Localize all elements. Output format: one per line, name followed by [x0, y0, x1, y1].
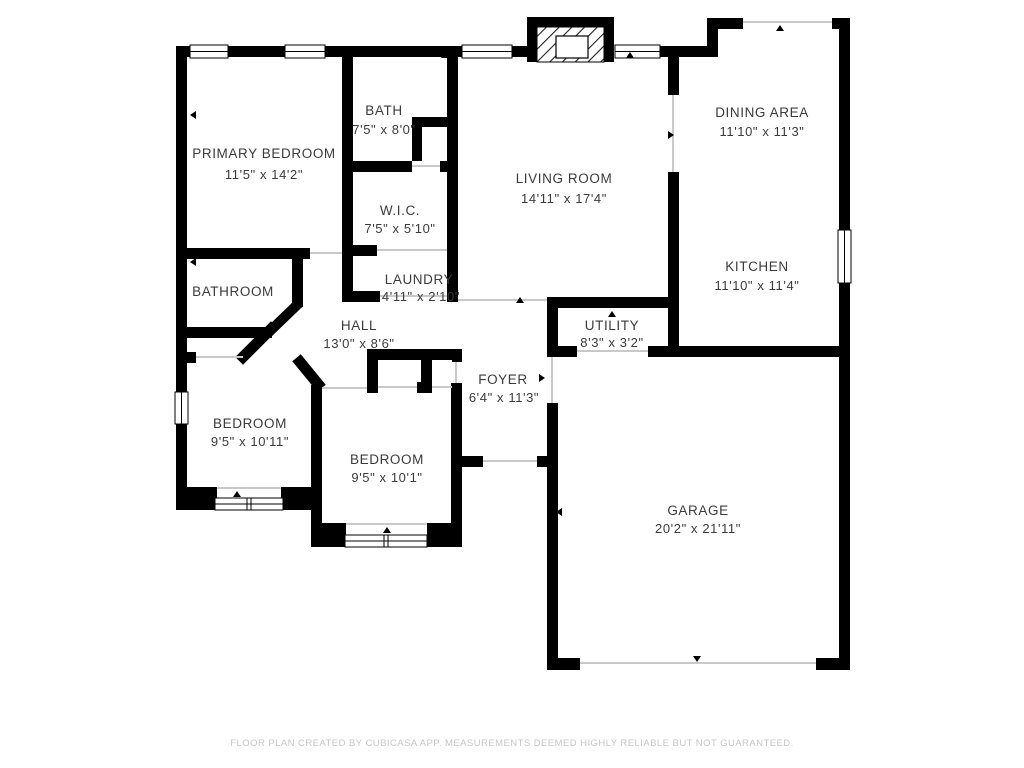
room-dims-bedroom-center: 9'5" x 10'1": [351, 470, 422, 485]
room-dims-primary-bedroom: 11'5" x 14'2": [225, 167, 303, 182]
room-label-kitchen: KITCHEN: [725, 259, 788, 274]
bay-window-icon: [215, 498, 283, 510]
window-icon: [838, 230, 851, 283]
room-label-bathroom: BATHROOM: [192, 284, 274, 299]
fireplace-icon: [527, 17, 614, 62]
room-label-utility: UTILITY: [585, 318, 639, 333]
window-icon: [190, 45, 228, 58]
room-dims-bedroom-left: 9'5" x 10'11": [211, 434, 289, 449]
window-icon: [175, 392, 188, 424]
room-label-wic: W.I.C.: [380, 203, 420, 218]
room-label-dining-area: DINING AREA: [715, 105, 809, 120]
room-label-primary-bedroom: PRIMARY BEDROOM: [192, 146, 336, 161]
room-label-bath: BATH: [365, 103, 402, 118]
floor-plan-svg: PRIMARY BEDROOM 11'5" x 14'2" BATH 7'5" …: [0, 0, 1024, 768]
room-dims-hall: 13'0" x 8'6": [323, 336, 394, 351]
room-dims-utility: 8'3" x 3'2": [580, 335, 643, 350]
room-label-living-room: LIVING ROOM: [516, 171, 613, 186]
room-dims-laundry: 4'11" x 2'10": [382, 289, 460, 304]
room-label-laundry: LAUNDRY: [385, 272, 453, 287]
room-label-foyer: FOYER: [478, 372, 528, 387]
angled-walls: [243, 306, 318, 384]
footer-disclaimer: FLOOR PLAN CREATED BY CUBICASA APP. MEAS…: [0, 738, 1024, 749]
window-icon: [462, 45, 512, 58]
room-dims-bath: 7'5" x 8'0": [352, 122, 415, 137]
room-dims-kitchen: 11'10" x 11'4": [715, 278, 800, 293]
room-dims-wic: 7'5" x 5'10": [364, 221, 435, 236]
bay-window-icon: [345, 535, 427, 547]
window-icon: [285, 45, 325, 58]
window-icon: [615, 45, 660, 58]
floor-plan-page: PRIMARY BEDROOM 11'5" x 14'2" BATH 7'5" …: [0, 0, 1024, 768]
room-label-hall: HALL: [341, 318, 377, 333]
room-label-bedroom-center: BEDROOM: [350, 452, 424, 467]
room-dims-foyer: 6'4" x 11'3": [469, 390, 539, 405]
measurement-markers: [190, 25, 845, 662]
room-label-bedroom-left: BEDROOM: [213, 416, 287, 431]
room-dims-dining-area: 11'10" x 11'3": [720, 124, 805, 139]
room-dims-garage: 20'2" x 21'11": [655, 521, 741, 536]
room-dims-living-room: 14'11" x 17'4": [521, 191, 607, 206]
windows: [175, 45, 851, 547]
room-label-garage: GARAGE: [667, 503, 728, 518]
